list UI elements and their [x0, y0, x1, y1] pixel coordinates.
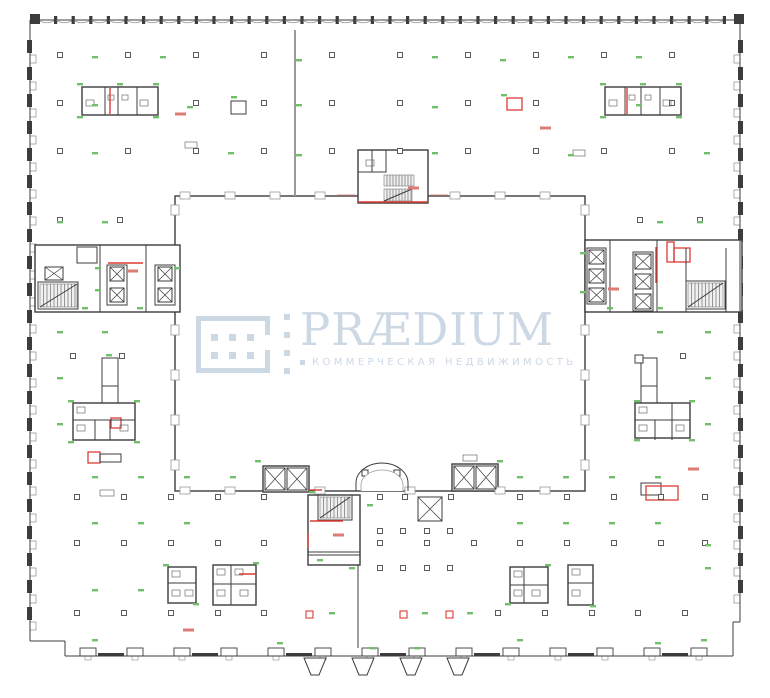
- brand-tagline: КОММЕРЧЕСКАЯ НЕДВИЖИМОСТЬ: [312, 357, 577, 368]
- brand-name: PRÆDIUM: [300, 306, 577, 354]
- floor-plan-page: PRÆDIUM КОММЕРЧЕСКАЯ НЕДВИЖИМОСТЬ: [0, 0, 770, 698]
- logo-dot-column-icon: [284, 314, 291, 384]
- praedium-watermark: PRÆDIUM КОММЕРЧЕСКАЯ НЕДВИЖИМОСТЬ: [196, 310, 596, 390]
- praedium-logo-mark-icon: [196, 316, 270, 373]
- tagline-bullet-icon: [300, 360, 305, 365]
